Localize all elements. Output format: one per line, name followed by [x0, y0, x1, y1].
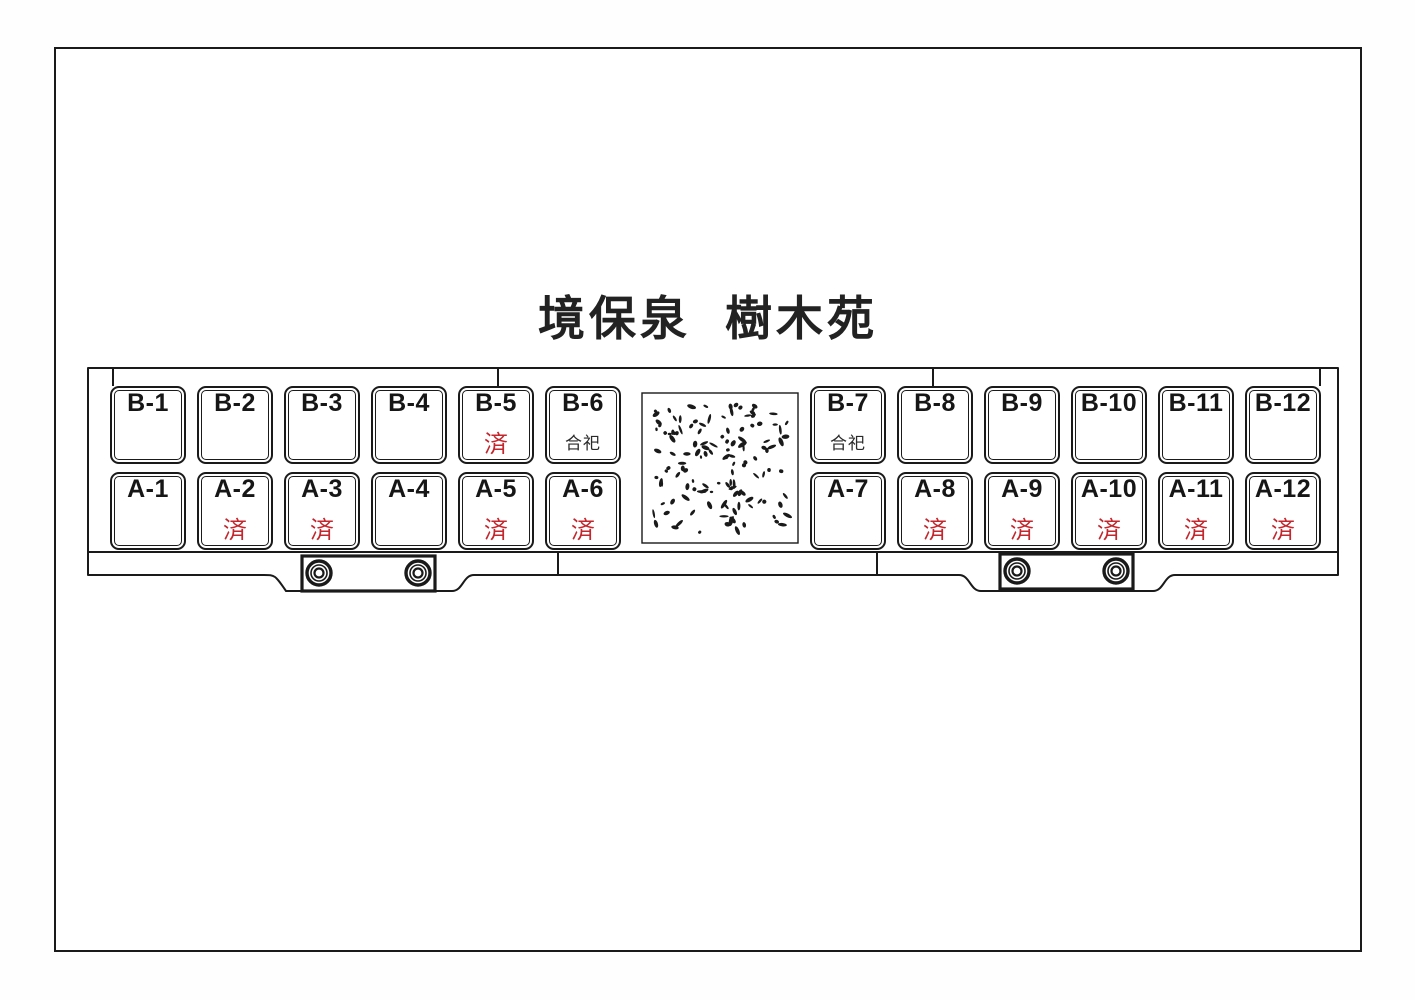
plot-status-reserved: 済	[1247, 510, 1319, 545]
plot-label: A-5	[460, 474, 532, 505]
plot-status-reserved: 済	[986, 510, 1058, 545]
plot-a-2: A-2済	[197, 472, 273, 550]
platform-outline	[88, 368, 1338, 591]
plot-label: A-1	[112, 474, 184, 505]
plot-a-6: A-6済	[545, 472, 621, 550]
plot-a-12: A-12済	[1245, 472, 1321, 550]
plot-label: A-6	[547, 474, 619, 505]
plot-b-8: B-8	[897, 386, 973, 464]
plot-b-7: B-7合祀	[810, 386, 886, 464]
plot-label: A-4	[373, 474, 445, 505]
plot-label: A-8	[899, 474, 971, 505]
plot-status-reserved: 済	[1160, 510, 1232, 545]
plot-a-7: A-7	[810, 472, 886, 550]
plot-label: B-10	[1073, 388, 1145, 419]
plot-label: A-9	[986, 474, 1058, 505]
plot-b-5: B-5済	[458, 386, 534, 464]
plot-b-6: B-6合祀	[545, 386, 621, 464]
plot-label: A-10	[1073, 474, 1145, 505]
plot-label: B-8	[899, 388, 971, 419]
plot-status-communal: 合祀	[547, 429, 619, 454]
plot-label: A-2	[199, 474, 271, 505]
plot-status-reserved: 済	[286, 510, 358, 545]
plot-status-reserved: 済	[1073, 510, 1145, 545]
plot-b-4: B-4	[371, 386, 447, 464]
plot-label: B-1	[112, 388, 184, 419]
plot-label: B-6	[547, 388, 619, 419]
left-basin-bowls	[307, 561, 430, 585]
plot-status-reserved: 済	[460, 424, 532, 459]
plot-a-9: A-9済	[984, 472, 1060, 550]
plot-label: B-9	[986, 388, 1058, 419]
plot-a-3: A-3済	[284, 472, 360, 550]
plot-label: A-12	[1247, 474, 1319, 505]
plot-b-3: B-3	[284, 386, 360, 464]
plot-label: B-2	[199, 388, 271, 419]
basin-bowl-icon	[315, 569, 324, 578]
plot-status-reserved: 済	[199, 510, 271, 545]
plot-label: B-3	[286, 388, 358, 419]
plot-a-8: A-8済	[897, 472, 973, 550]
plot-b-12: B-12	[1245, 386, 1321, 464]
plot-b-9: B-9	[984, 386, 1060, 464]
site-plan-page: 境保泉 樹木苑 B-1	[0, 0, 1415, 1000]
right-basin-bowls	[1005, 559, 1128, 583]
plot-label: B-4	[373, 388, 445, 419]
plot-a-11: A-11済	[1158, 472, 1234, 550]
planting-area-gravel	[652, 402, 793, 536]
plot-label: B-12	[1247, 388, 1319, 419]
plot-status-reserved: 済	[899, 510, 971, 545]
plot-b-10: B-10	[1071, 386, 1147, 464]
plot-a-10: A-10済	[1071, 472, 1147, 550]
plot-a-5: A-5済	[458, 472, 534, 550]
plot-label: B-7	[812, 388, 884, 419]
plot-status-communal: 合祀	[812, 429, 884, 454]
plot-label: A-7	[812, 474, 884, 505]
plot-a-1: A-1	[110, 472, 186, 550]
plot-label: A-11	[1160, 474, 1232, 505]
plot-a-4: A-4	[371, 472, 447, 550]
plot-status-reserved: 済	[547, 510, 619, 545]
plot-label: A-3	[286, 474, 358, 505]
plot-b-1: B-1	[110, 386, 186, 464]
plot-status-reserved: 済	[460, 510, 532, 545]
basin-bowl-icon	[1013, 567, 1022, 576]
site-title: 境保泉 樹木苑	[54, 280, 1362, 349]
basin-bowl-icon	[414, 569, 423, 578]
planting-area	[642, 393, 798, 543]
basin-bowl-icon	[1112, 567, 1121, 576]
plot-b-2: B-2	[197, 386, 273, 464]
plot-label: B-5	[460, 388, 532, 419]
plot-b-11: B-11	[1158, 386, 1234, 464]
plot-label: B-11	[1160, 388, 1232, 419]
